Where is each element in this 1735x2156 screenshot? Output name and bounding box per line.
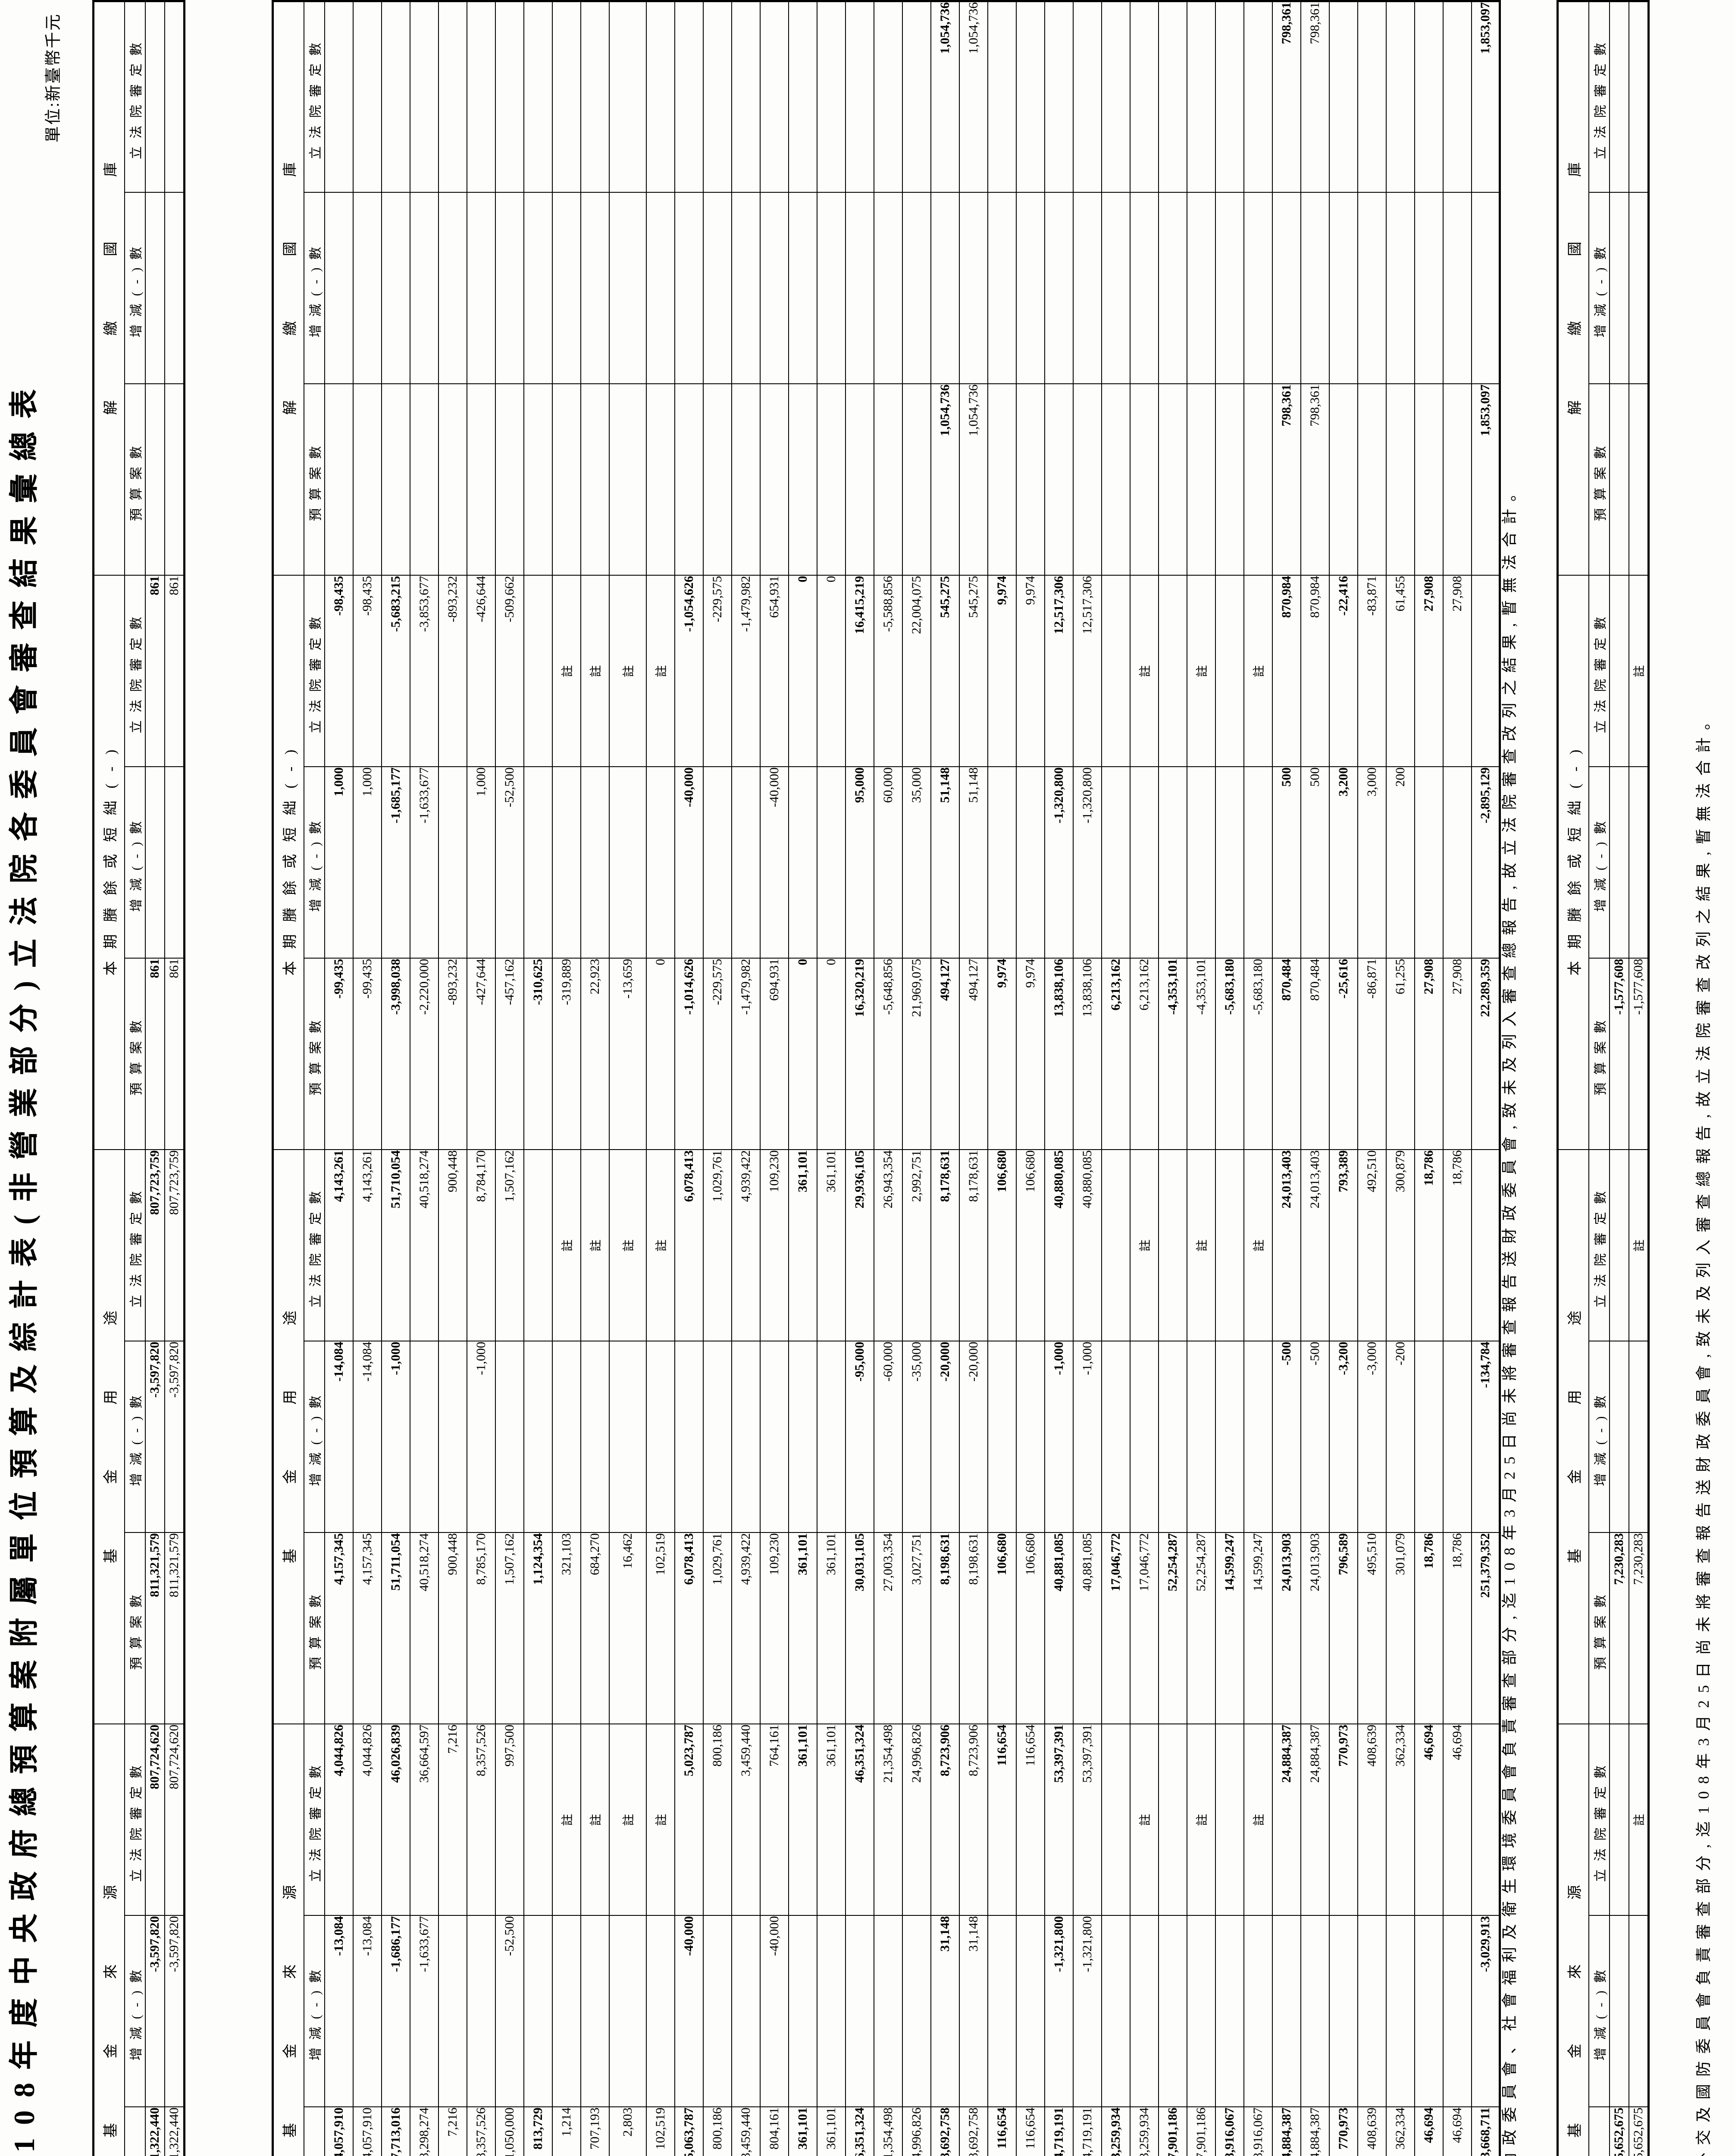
value-cell-1 (524, 1916, 552, 2107)
value-cell-4 (1415, 1341, 1443, 1533)
table-row: 核子事故緊急應變基金116,654116,654106,680106,6809,… (1016, 1, 1045, 2156)
value-cell-9 (760, 384, 789, 576)
value-cell-1: -3,029,913 (1472, 1916, 1500, 2107)
value-cell-2: 註 (1187, 1724, 1215, 1916)
value-cell-10 (1045, 193, 1073, 384)
value-cell-11 (1244, 1, 1272, 193)
value-cell-9 (165, 384, 185, 576)
value-cell-10 (1215, 193, 1244, 384)
value-cell-2 (1472, 1724, 1500, 1916)
value-cell-5: 8,784,170 (467, 1150, 495, 1341)
table-row: 行政院主管47,713,016-1,686,17746,026,83951,71… (382, 1, 410, 2156)
value-cell-9 (902, 384, 931, 576)
value-cell-6: -5,648,856 (874, 959, 902, 1150)
value-cell-11 (467, 1, 495, 193)
value-cell-6: -319,889 (552, 959, 581, 1150)
value-cell-7 (1187, 767, 1215, 959)
value-cell-1: -40,000 (760, 1916, 789, 2107)
value-cell-9 (703, 384, 732, 576)
value-cell-0: 23,259,934 (1102, 2107, 1130, 2156)
table-row: 衛生福利特別收入基金47,901,186註52,254,287註-4,353,1… (1187, 1, 1215, 2156)
value-cell-10 (1016, 193, 1045, 384)
value-cell-4 (675, 1341, 703, 1533)
value-cell-5: 361,101 (817, 1150, 846, 1341)
value-cell-0: 804,161 (760, 2107, 789, 2156)
value-cell-0: 707,193 (581, 2107, 609, 2156)
value-cell-10 (1386, 193, 1415, 384)
value-cell-4 (1016, 1341, 1045, 1533)
value-cell-5: 註 (609, 1150, 646, 1341)
value-cell-1 (988, 1916, 1016, 2107)
value-cell-4 (1610, 1341, 1629, 1533)
value-cell-9 (524, 384, 552, 576)
value-cell-10 (1301, 193, 1329, 384)
value-cell-0: 46,351,324 (846, 2107, 874, 2156)
value-cell-0: 23,259,934 (1130, 2107, 1159, 2156)
value-cell-3: 684,270 (581, 1533, 609, 1724)
value-cell-6: -86,871 (1358, 959, 1386, 1150)
value-cell-8 (1102, 576, 1130, 767)
value-cell-5: 106,680 (1016, 1150, 1045, 1341)
value-cell-3: 17,046,772 (1102, 1533, 1130, 1724)
value-cell-5: 註 (552, 1150, 581, 1341)
value-cell-10 (1272, 193, 1301, 384)
value-cell-7 (1215, 767, 1244, 959)
value-cell-8: 16,415,219 (846, 576, 874, 767)
value-cell-10 (552, 193, 581, 384)
table-row: 有線廣播電視事業發展基金362,334362,334301,079-200300… (1386, 1, 1415, 2156)
column-subheader-0-1: 增減(-)數 (125, 1916, 145, 2107)
value-cell-7: 35,000 (902, 767, 931, 959)
value-cell-8: 22,004,075 (902, 576, 931, 767)
table-row: 國家通訊傳播委員會主管770,973770,973796,589-3,20079… (1329, 1, 1358, 2156)
value-cell-5: 8,178,631 (959, 1150, 988, 1341)
unit-label: 單位:新臺幣千元 (40, 13, 63, 143)
table-row: 金融監督管理基金24,884,38724,884,38724,013,903-5… (1301, 1, 1329, 2156)
table-row: 法務部主管361,101361,101361,101361,10100 (789, 1, 817, 2156)
value-cell-11: 1,054,736 (931, 1, 959, 193)
value-cell-2: 36,664,597 (410, 1724, 438, 1916)
value-cell-3: 495,510 (1358, 1533, 1386, 1724)
table-row: 環境保護基金8,916,067註14,599,247註-5,683,180註 (1244, 1, 1272, 2156)
value-cell-0: 273,668,711 (1472, 2107, 1500, 2156)
value-cell-6: -229,575 (703, 959, 732, 1150)
value-cell-10 (325, 193, 353, 384)
value-cell-4: -1,000 (1073, 1341, 1102, 1533)
value-cell-5 (1159, 1150, 1187, 1341)
value-cell-3: 811,321,579 (165, 1533, 185, 1724)
value-cell-4: -1,000 (1045, 1341, 1073, 1533)
value-cell-4: -134,784 (1472, 1341, 1500, 1533)
value-cell-7 (732, 767, 760, 959)
screenshot-root: 表六 中華民國108年度中央政府總預算案附屬單位預算及綜計表(非營業部分)立法院… (0, 0, 1735, 2156)
value-cell-3: 4,157,345 (325, 1533, 353, 1724)
value-cell-3: 1,507,162 (495, 1533, 524, 1724)
value-cell-8: 0 (817, 576, 846, 767)
column-subheader-0-2: 立法院審定數 (304, 1724, 325, 1916)
value-cell-2: 361,101 (817, 1724, 846, 1916)
value-cell-6: 870,484 (1301, 959, 1329, 1150)
value-cell-10 (1244, 193, 1272, 384)
table-row: 大專校院轉型及退場基金804,161-40,000764,161109,2301… (760, 1, 789, 2156)
value-cell-9 (1159, 384, 1187, 576)
table-row: 航港建設基金8,692,75831,1488,723,9068,198,631-… (959, 1, 988, 2156)
value-cell-3: 8,198,631 (959, 1533, 988, 1724)
value-cell-11 (1187, 1, 1215, 193)
value-cell-8: 545,275 (959, 576, 988, 767)
value-cell-4: -1,000 (382, 1341, 410, 1533)
value-cell-7 (703, 767, 732, 959)
column-subheader-1-2: 立法院審定數 (304, 1150, 325, 1341)
value-cell-6: 27,908 (1443, 959, 1472, 1150)
value-cell-10 (646, 193, 675, 384)
value-cell-1: -3,597,820 (145, 1916, 165, 2107)
value-cell-8: 9,974 (988, 576, 1016, 767)
value-cell-2 (1102, 1724, 1130, 1916)
table-row: 金融監督管理委員會主管24,884,38724,884,38724,013,90… (1272, 1, 1301, 2156)
value-cell-7: -1,320,800 (1045, 767, 1073, 959)
value-cell-11 (732, 1, 760, 193)
value-cell-2: 53,397,391 (1045, 1724, 1073, 1916)
value-cell-8: 註 (1244, 576, 1272, 767)
value-cell-5: 註 (646, 1150, 675, 1341)
column-subheader-0-1: 增減(-)數 (1589, 1916, 1610, 2107)
value-cell-5: 40,880,085 (1045, 1150, 1073, 1341)
value-cell-10 (1159, 193, 1187, 384)
value-cell-7: 200 (1386, 767, 1415, 959)
value-cell-6: 13,838,106 (1073, 959, 1102, 1150)
value-cell-4 (646, 1341, 675, 1533)
table-row: 新住民發展基金1,214註321,103註-319,889註 (552, 1, 581, 2156)
value-cell-10 (703, 193, 732, 384)
value-cell-6: 861 (145, 959, 165, 1150)
value-cell-9: 798,361 (1272, 384, 1301, 576)
value-cell-7 (524, 767, 552, 959)
value-cell-0: 46,694 (1415, 2107, 1443, 2156)
value-cell-2: 764,161 (760, 1724, 789, 1916)
value-cell-11: 798,361 (1301, 1, 1329, 193)
value-cell-1 (789, 1916, 817, 2107)
column-subheader-1-1: 增減(-)數 (125, 1341, 145, 1533)
value-cell-8: 870,984 (1301, 576, 1329, 767)
value-cell-8: 654,931 (760, 576, 789, 767)
value-cell-9 (1443, 384, 1472, 576)
value-cell-8 (524, 576, 552, 767)
value-cell-9 (1215, 384, 1244, 576)
column-subheader-1-1: 增減(-)數 (1589, 1341, 1610, 1533)
value-cell-7 (1629, 767, 1649, 959)
value-cell-2: 註 (581, 1724, 609, 1916)
value-cell-10 (1130, 193, 1159, 384)
table-row: 離島建設基金7,2167,216900,448900,448-893,232-8… (438, 1, 467, 2156)
value-cell-5: 18,786 (1415, 1150, 1443, 1341)
value-cell-1: -1,686,177 (382, 1916, 410, 2107)
table-row: 反托拉斯基金46,69446,69418,78618,78627,90827,9… (1443, 1, 1472, 2156)
value-cell-3: 811,321,579 (145, 1533, 165, 1724)
value-cell-10 (1358, 193, 1386, 384)
value-cell-3: 14,599,247 (1244, 1533, 1272, 1724)
value-cell-5: 900,448 (438, 1150, 467, 1341)
value-cell-9 (410, 384, 438, 576)
value-cell-10 (760, 193, 789, 384)
column-subheader-3-2: 立法院審定數 (125, 1, 145, 193)
value-cell-6: -1,577,608 (1610, 959, 1629, 1150)
value-cell-2 (1215, 1724, 1244, 1916)
column-group-header-2: 本期賸餘或短絀(-) (273, 576, 304, 1150)
value-cell-9 (1415, 384, 1443, 576)
value-cell-0: 811,322,440 (145, 2107, 165, 2156)
value-cell-7 (552, 767, 581, 959)
value-cell-9 (609, 384, 646, 576)
value-cell-7 (609, 767, 646, 959)
column-subheader-1-0: 預算案數 (125, 1533, 145, 1724)
table-row: 經濟部主管46,351,32446,351,32430,031,105-95,0… (846, 1, 874, 2156)
table-row: 核能發電後端營運基金24,996,82624,996,8263,027,751-… (902, 1, 931, 2156)
value-cell-1 (646, 1916, 675, 2107)
value-cell-9 (1358, 384, 1386, 576)
value-cell-4 (438, 1341, 467, 1533)
value-cell-11 (353, 1, 382, 193)
value-cell-5: 1,507,162 (495, 1150, 524, 1341)
value-cell-10 (789, 193, 817, 384)
value-cell-0: 46,694 (1443, 2107, 1472, 2156)
value-cell-8: 註 (646, 576, 675, 767)
value-cell-5: 註 (581, 1150, 609, 1341)
value-cell-3: 7,230,283 (1610, 1533, 1629, 1724)
value-cell-4 (789, 1341, 817, 1533)
value-cell-7: 3,000 (1358, 767, 1386, 959)
table-row: 農業委員會主管54,719,191-1,321,80053,397,39140,… (1045, 1, 1073, 2156)
value-cell-2: 24,884,387 (1301, 1724, 1329, 1916)
column-subheader-1-1: 增減(-)數 (304, 1341, 325, 1533)
value-cell-6: -99,435 (325, 959, 353, 1150)
value-cell-6: 861 (165, 959, 185, 1150)
column-subheader-0-0: 預算案數 (1589, 2107, 1610, 2156)
column-group-header-3: 解繳國庫 (273, 1, 304, 576)
value-cell-10 (145, 193, 165, 384)
value-cell-9 (1130, 384, 1159, 576)
value-cell-5: 807,723,759 (165, 1150, 185, 1341)
value-cell-0: 5,063,787 (675, 2107, 703, 2156)
table-row: 公平交易委員會主管46,69446,69418,78618,78627,9082… (1415, 1, 1443, 2156)
value-cell-1: -3,597,820 (165, 1916, 185, 2107)
debt-funds-table: 基金名稱基金來源基金用途本期賸餘或短絀(-)解繳國庫預算案數增減(-)數立法院審… (92, 0, 185, 2156)
value-cell-8: -229,575 (703, 576, 732, 767)
value-cell-2 (1610, 1724, 1629, 1916)
value-cell-8: -426,644 (467, 576, 495, 767)
value-cell-3: 18,786 (1443, 1533, 1472, 1724)
value-cell-11 (1102, 1, 1130, 193)
value-cell-3: 106,680 (1016, 1533, 1045, 1724)
value-cell-8: 12,517,306 (1045, 576, 1073, 767)
value-cell-0: 116,654 (988, 2107, 1016, 2156)
value-cell-0: 8,692,758 (931, 2107, 959, 2156)
value-cell-2: 8,723,906 (959, 1724, 988, 1916)
table-row: 交通部主管8,692,75831,1488,723,9068,198,631-2… (931, 1, 959, 2156)
table-row: 毒品防制基金361,101361,101361,101361,10100 (817, 1, 846, 2156)
value-cell-7 (1102, 767, 1130, 959)
value-cell-2: 8,723,906 (931, 1724, 959, 1916)
value-cell-10 (1472, 193, 1500, 384)
value-cell-4: -500 (1272, 1341, 1301, 1533)
value-cell-1 (1215, 1916, 1244, 2107)
column-group-header-2: 本期賸餘或短絀(-) (94, 576, 125, 1150)
value-cell-10 (353, 193, 382, 384)
value-cell-5: 29,936,105 (846, 1150, 874, 1341)
value-cell-0: 408,639 (1358, 2107, 1386, 2156)
value-cell-3: 6,078,413 (675, 1533, 703, 1724)
value-cell-2: 4,044,826 (325, 1724, 353, 1916)
value-cell-0: 8,692,758 (959, 2107, 988, 2156)
value-cell-11 (646, 1, 675, 193)
value-cell-4: -500 (1301, 1341, 1329, 1533)
value-cell-7: -40,000 (675, 767, 703, 959)
value-cell-0: 8,357,526 (467, 2107, 495, 2156)
value-cell-5: 24,013,403 (1272, 1150, 1301, 1341)
value-cell-0: 47,901,186 (1187, 2107, 1215, 2156)
page-title: 表六 中華民國108年度中央政府總預算案附屬單位預算及綜計表(非營業部分)立法院… (0, 376, 43, 2156)
value-cell-5 (1472, 1150, 1500, 1341)
value-cell-8 (1472, 576, 1500, 767)
value-cell-0: 361,101 (789, 2107, 817, 2156)
value-cell-7: 1,000 (467, 767, 495, 959)
value-cell-4: -14,084 (353, 1341, 382, 1533)
value-cell-1 (1629, 1916, 1649, 2107)
value-cell-5: 6,078,413 (675, 1150, 703, 1341)
value-cell-4 (609, 1341, 646, 1533)
value-cell-11 (760, 1, 789, 193)
value-cell-7: -1,685,177 (382, 767, 410, 959)
value-cell-2: 註 (1244, 1724, 1272, 1916)
value-cell-2: 註 (552, 1724, 581, 1916)
value-cell-11 (1045, 1, 1073, 193)
value-cell-6: 27,908 (1415, 959, 1443, 1150)
capital-project-funds-table: 基金名稱基金來源基金用途本期賸餘或短絀(-)解繳國庫預算案數增減(-)數立法院審… (1556, 0, 1650, 2156)
value-cell-7: 60,000 (874, 767, 902, 959)
value-cell-1 (1329, 1916, 1358, 2107)
value-cell-5: 4,143,261 (353, 1150, 382, 1341)
value-cell-2: 807,724,620 (145, 1724, 165, 1916)
value-cell-0: 813,729 (524, 2107, 552, 2156)
value-cell-5: 註 (1244, 1150, 1272, 1341)
value-cell-2: 46,694 (1415, 1724, 1443, 1916)
value-cell-8: 註 (1187, 576, 1215, 767)
column-subheader-0-0: 預算案數 (304, 2107, 325, 2156)
value-cell-3: 24,013,903 (1272, 1533, 1301, 1724)
table-row: 研發及產業訓儲替代役基金707,193註684,270註22,923註 (581, 1, 609, 2156)
value-cell-4 (1629, 1341, 1649, 1533)
value-cell-0: 24,996,826 (902, 2107, 931, 2156)
value-cell-9 (646, 384, 675, 576)
value-cell-8 (1610, 576, 1629, 767)
value-cell-3: 301,079 (1386, 1533, 1415, 1724)
value-cell-0: 5,652,675 (1629, 2107, 1649, 2156)
value-cell-6: -25,616 (1329, 959, 1358, 1150)
value-cell-10 (988, 193, 1016, 384)
value-cell-7: 500 (1301, 767, 1329, 959)
table-row: 中央政府債務基金811,322,440-3,597,820807,724,620… (165, 1, 185, 2156)
value-cell-7: 1,000 (325, 767, 353, 959)
value-cell-2 (1159, 1724, 1187, 1916)
value-cell-11: 1,853,097 (1472, 1, 1500, 193)
value-cell-2: 116,654 (1016, 1724, 1045, 1916)
value-cell-7 (789, 767, 817, 959)
value-cell-6: 0 (646, 959, 675, 1150)
value-cell-4: -35,000 (902, 1341, 931, 1533)
value-cell-3: 24,013,903 (1301, 1533, 1329, 1724)
value-cell-6: 9,974 (1016, 959, 1045, 1150)
value-cell-0: 362,334 (1386, 2107, 1415, 2156)
value-cell-7: 51,148 (959, 767, 988, 959)
value-cell-4: -200 (1386, 1341, 1415, 1533)
value-cell-11 (410, 1, 438, 193)
value-cell-11 (165, 1, 185, 193)
value-cell-3: 361,101 (789, 1533, 817, 1724)
column-subheader-2-1: 增減(-)數 (304, 767, 325, 959)
value-cell-6: -4,353,101 (1187, 959, 1215, 1150)
value-cell-3: 40,881,085 (1073, 1533, 1102, 1724)
value-cell-0: 7,216 (438, 2107, 467, 2156)
value-cell-0: 38,298,274 (410, 2107, 438, 2156)
column-subheader-3-1: 增減(-)數 (304, 193, 325, 384)
column-subheader-2-0: 預算案數 (125, 959, 145, 1150)
value-cell-11 (1073, 1, 1102, 193)
value-cell-2: 24,884,387 (1272, 1724, 1301, 1916)
value-cell-0: 8,916,067 (1215, 2107, 1244, 2156)
value-cell-9 (1244, 384, 1272, 576)
value-cell-11 (874, 1, 902, 193)
column-group-header-3: 解繳國庫 (94, 1, 125, 576)
column-subheader-1-2: 立法院審定數 (125, 1150, 145, 1341)
value-cell-10 (817, 193, 846, 384)
value-cell-2: 註 (646, 1724, 675, 1916)
value-cell-1: -52,500 (495, 1916, 524, 2107)
value-cell-2: 46,694 (1443, 1724, 1472, 1916)
value-cell-0: 54,719,191 (1073, 2107, 1102, 2156)
value-cell-4 (495, 1341, 524, 1533)
value-cell-2: 註 (609, 1724, 646, 1916)
value-cell-8: -22,416 (1329, 576, 1358, 767)
value-cell-6: -1,479,982 (732, 959, 760, 1150)
value-cell-5: 8,178,631 (931, 1150, 959, 1341)
value-cell-1 (1159, 1916, 1187, 2107)
value-cell-7 (1244, 767, 1272, 959)
value-cell-0: 361,101 (817, 2107, 846, 2156)
value-cell-7: 1,000 (353, 767, 382, 959)
value-cell-6: -99,435 (353, 959, 382, 1150)
value-cell-10 (959, 193, 988, 384)
column-subheader-0-2: 立法院審定數 (1589, 1724, 1610, 1916)
value-cell-6: 494,127 (931, 959, 959, 1150)
value-cell-0: 21,354,498 (874, 2107, 902, 2156)
special-revenue-funds-table: 基金名稱基金來源基金用途本期賸餘或短絀(-)解繳國庫預算案數增減(-)數立法院審… (272, 0, 1501, 2156)
value-cell-7 (165, 767, 185, 959)
value-cell-1 (552, 1916, 581, 2107)
value-cell-1 (732, 1916, 760, 2107)
value-cell-1: -1,633,677 (410, 1916, 438, 2107)
table-row: 中央研究院科學研究基金4,057,910-13,0844,044,8264,15… (353, 1, 382, 2156)
value-cell-10 (438, 193, 467, 384)
value-cell-3: 109,230 (760, 1533, 789, 1724)
footnote-capital-project: 註:108年度附屬單位預算非營業預算由外交及國防委員會負責審查部分,迄108年3… (1691, 707, 1713, 2156)
value-cell-3: 27,003,354 (874, 1533, 902, 1724)
value-cell-8: -5,683,215 (382, 576, 410, 767)
value-cell-11 (1386, 1, 1415, 193)
value-cell-1 (902, 1916, 931, 2107)
value-cell-9: 1,054,736 (959, 384, 988, 576)
value-cell-10 (1629, 193, 1649, 384)
value-cell-5 (1610, 1150, 1629, 1341)
